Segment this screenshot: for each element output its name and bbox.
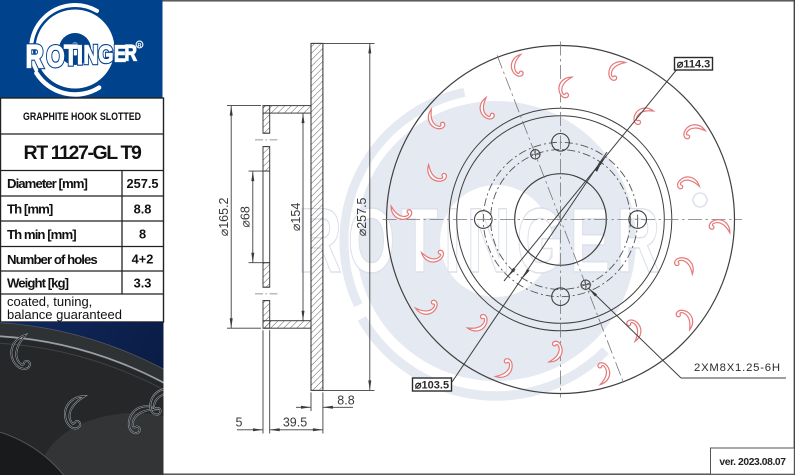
svg-text:ROTINGER: ROTINGER (298, 188, 666, 292)
svg-text:⌀165.2: ⌀165.2 (217, 197, 231, 236)
svg-text:8: 8 (139, 227, 146, 242)
svg-text:Number of holes: Number of holes (7, 252, 97, 267)
svg-text:ver. 2023.08.07: ver. 2023.08.07 (719, 457, 786, 468)
svg-text:39.5: 39.5 (283, 416, 307, 430)
svg-text:5: 5 (236, 416, 243, 430)
svg-text:Th min [mm]: Th min [mm] (7, 227, 76, 242)
svg-text:⌀68: ⌀68 (238, 206, 252, 227)
svg-text:N: N (84, 40, 99, 69)
svg-text:Weight [kg]: Weight [kg] (7, 276, 69, 291)
svg-text:GRAPHITE HOOK SLOTTED: GRAPHITE HOOK SLOTTED (23, 111, 141, 123)
svg-text:2XM8X1.25-6H: 2XM8X1.25-6H (694, 362, 781, 374)
svg-text:I: I (77, 41, 83, 71)
svg-text:balance guaranteed: balance guaranteed (7, 307, 122, 322)
svg-text:⌀103.5: ⌀103.5 (415, 379, 449, 391)
svg-text:3.3: 3.3 (134, 275, 152, 290)
svg-text:⌀257.5: ⌀257.5 (355, 197, 369, 236)
svg-text:8.8: 8.8 (337, 394, 354, 408)
svg-text:O: O (47, 40, 65, 73)
svg-text:⌀154: ⌀154 (289, 203, 303, 231)
svg-text:⌀114.3: ⌀114.3 (677, 59, 711, 71)
svg-text:R: R (125, 42, 137, 67)
svg-text:T: T (64, 41, 78, 72)
svg-text:R: R (26, 40, 44, 76)
svg-text:Th [mm]: Th [mm] (7, 202, 53, 217)
svg-text:Diameter [mm]: Diameter [mm] (7, 176, 88, 191)
svg-text:R: R (138, 43, 142, 49)
svg-text:G: G (99, 40, 114, 68)
svg-text:257.5: 257.5 (126, 176, 158, 191)
svg-text:4+2: 4+2 (132, 252, 154, 267)
svg-text:RT 1127-GL T9: RT 1127-GL T9 (24, 142, 142, 164)
svg-text:8.8: 8.8 (134, 201, 152, 216)
